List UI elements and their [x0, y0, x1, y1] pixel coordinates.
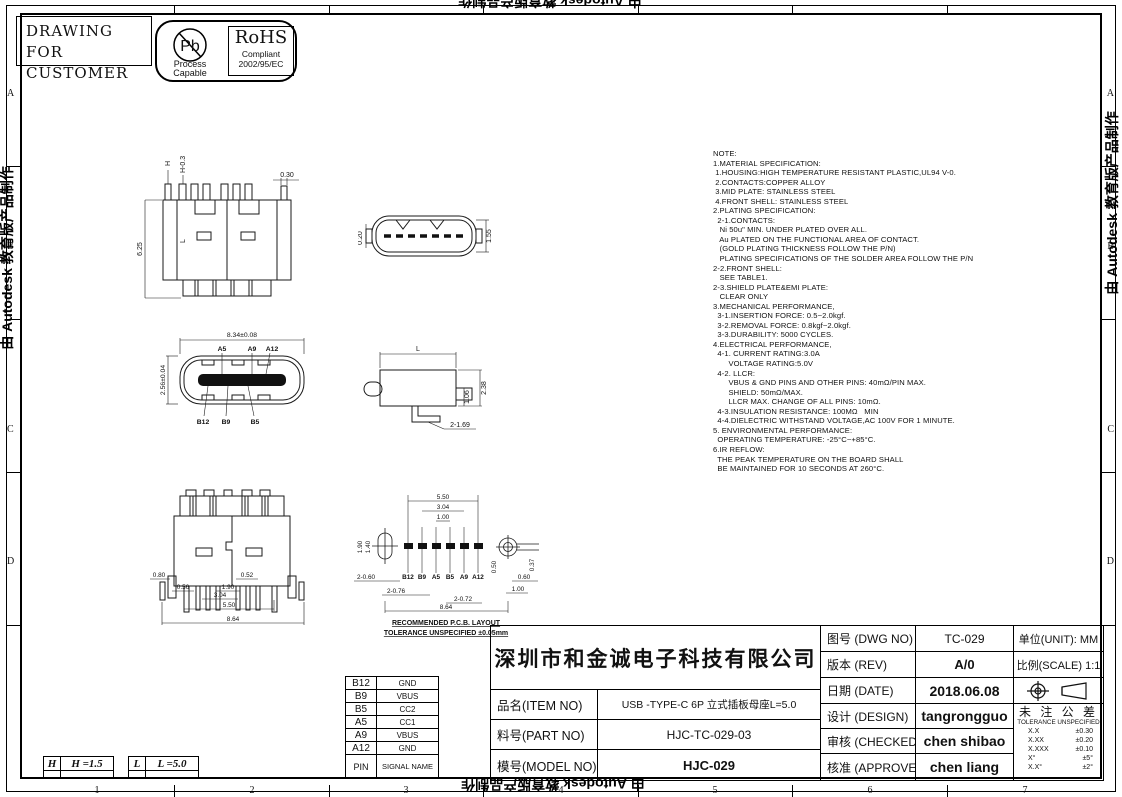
- zone-tick: [329, 5, 330, 13]
- zone-number: 6: [860, 785, 880, 796]
- svg-text:Pb: Pb: [180, 38, 200, 55]
- checked-label: 审核 (CHECKED): [821, 729, 916, 754]
- back-dim-3-04: 3.04: [214, 592, 227, 599]
- zone-number: 7: [1015, 785, 1035, 796]
- checked-value: chen shibao: [916, 729, 1014, 754]
- part-value: HJC-TC-029-03: [598, 720, 821, 750]
- zone-number: 1: [87, 785, 107, 796]
- zone-tick: [174, 5, 175, 13]
- l-key: L: [129, 757, 146, 771]
- face-dim-width: 8.34±0.08: [227, 332, 257, 339]
- watermark-top: 由 Autodesk 教育版产品制作: [425, 0, 675, 11]
- pcb-caption-line1: RECOMMENDED P.C.B. LAYOUT: [392, 620, 501, 627]
- side-dim-l: L: [416, 346, 420, 353]
- back-view-outline: [160, 490, 304, 612]
- pcb-pad-a9: A9: [460, 574, 469, 581]
- pcb-slot-pads: [404, 543, 483, 549]
- h-parameter-table: H H =1.5: [43, 756, 114, 779]
- zone-number: 3: [396, 785, 416, 796]
- top-dim-0-20: 0.20: [358, 231, 364, 245]
- pcb-dim-2-0-60: 2-0.60: [357, 574, 376, 581]
- watermark-left: 由 Autodesk 教育版产品制作: [0, 133, 17, 383]
- model-value: HJC-029: [598, 750, 821, 780]
- rohs-line2: 2002/95/EC: [229, 59, 293, 69]
- zone-tick: [174, 785, 175, 797]
- approved-label: 核准 (APPROVED): [821, 754, 916, 780]
- zone-number: 2: [242, 785, 262, 796]
- face-view-tongue: [198, 374, 286, 386]
- zone-letter: D: [7, 556, 14, 567]
- h-value: H =1.5: [61, 757, 113, 771]
- zone-letter: D: [1107, 556, 1114, 567]
- dwg-no-value: TC-029: [916, 626, 1014, 652]
- item-value: USB -TYPE-C 6P 立式插板母座L=5.0: [598, 690, 821, 720]
- projection-symbol: [1014, 678, 1103, 704]
- pin-cell: B5: [346, 703, 377, 716]
- signal-cell: CC2: [377, 703, 438, 716]
- back-dim-5-50: 5.50: [223, 602, 236, 609]
- top-dim-1-55: 1.55: [486, 229, 493, 243]
- item-label: 品名(ITEM NO): [491, 690, 598, 720]
- face-pin-a12: A12: [266, 346, 279, 353]
- zone-letter: C: [7, 424, 14, 435]
- rohs-title: RoHS: [229, 27, 293, 49]
- h-empty: [44, 771, 61, 778]
- pcb-pad-a5: A5: [432, 574, 441, 581]
- side-dim-1-06: 1.06: [464, 390, 471, 404]
- pcb-pad-b9: B9: [418, 574, 427, 581]
- signal-header-cell: SIGNAL NAME: [377, 755, 438, 778]
- tol-key: X.X: [1028, 727, 1039, 736]
- pcb-dim-1-00: 1.00: [437, 514, 450, 521]
- front-dim-h-minus: H-0.3: [180, 156, 187, 173]
- front-dim-h: H: [165, 161, 172, 166]
- zone-tick: [947, 785, 948, 797]
- l-empty: [129, 771, 146, 778]
- tol-val: ±5°: [1082, 754, 1093, 763]
- pcb-dim-1-90: 1.90: [357, 540, 364, 553]
- drawing-for-customer-box: DRAWING FOR CUSTOMER: [16, 16, 152, 66]
- title-block: 深圳市和金诚电子科技有限公司 品名(ITEM NO) USB -TYPE-C 6…: [490, 625, 1104, 781]
- pcb-dim-2-0-76: 2-0.76: [387, 588, 406, 595]
- signal-cell: GND: [377, 742, 438, 755]
- date-value: 2018.06.08: [916, 678, 1014, 704]
- notes-block: NOTE:1.MATERIAL SPECIFICATION: 1.HOUSING…: [713, 149, 1113, 474]
- zone-number: 5: [705, 785, 725, 796]
- approved-value: chen liang: [916, 754, 1014, 780]
- pcb-dim-2-0-72: 2-0.72: [454, 596, 473, 603]
- side-view: L 1.06 2.38 2-1.69: [348, 328, 493, 440]
- rev-label: 版本 (REV): [821, 652, 916, 678]
- pcb-pad-b5: B5: [446, 574, 455, 581]
- design-value: tangrongguo: [916, 704, 1014, 729]
- pcb-dim-5-50: 5.50: [437, 494, 450, 501]
- back-view: 0.80 0.56 0.52 1.90 3.04 5.50 8.64: [146, 484, 316, 636]
- scale-label: 比例(SCALE) 1:1: [1014, 652, 1103, 678]
- pcb-pads-outline: [372, 528, 539, 564]
- pcb-dim-1-40: 1.40: [365, 540, 372, 553]
- l-value: L =5.0: [146, 757, 198, 771]
- compliance-stamp: Pb Process Capable RoHS Compliant 2002/9…: [155, 20, 297, 82]
- h-key: H: [44, 757, 61, 771]
- drawing-for-line2: CUSTOMER: [26, 63, 151, 84]
- pin-signal-table: B12 GND B9 VBUS B5 CC2 A5 CC1 A9 VBUS A1…: [345, 676, 439, 779]
- face-pin-b5: B5: [251, 419, 260, 426]
- pcb-dim-1-00b: 1.00: [512, 586, 525, 593]
- pcb-dim-0-50: 0.50: [491, 560, 498, 573]
- tolerance-block: 未 注 公 差 TOLERANCE UNSPECIFIED X.X±0.30 X…: [1014, 704, 1103, 780]
- pin-cell: B12: [346, 677, 377, 690]
- rev-value: A/0: [916, 652, 1014, 678]
- back-dim-0-52: 0.52: [241, 572, 254, 579]
- top-view: 0.20 1.55: [358, 196, 493, 276]
- model-label: 模号(MODEL NO): [491, 750, 598, 780]
- front-dim-6-25: 6.25: [137, 242, 144, 256]
- side-dim-holes: 2-1.69: [450, 422, 470, 429]
- pcb-pad-b12: B12: [402, 574, 414, 581]
- zone-letter: A: [7, 88, 14, 99]
- design-label: 设计 (DESIGN): [821, 704, 916, 729]
- company-name: 深圳市和金诚电子科技有限公司: [491, 626, 821, 690]
- tol-val: ±0.10: [1076, 745, 1093, 754]
- date-label: 日期 (DATE): [821, 678, 916, 704]
- back-dim-0-56: 0.56: [177, 584, 190, 591]
- tol-val: ±0.20: [1076, 736, 1093, 745]
- face-pin-b9: B9: [222, 419, 231, 426]
- back-dim-8-64: 8.64: [227, 616, 240, 623]
- pcb-dim-0-37: 0.37: [529, 558, 536, 571]
- pin-cell: A12: [346, 742, 377, 755]
- tol-val: ±0.30: [1076, 727, 1093, 736]
- side-view-outline: [364, 370, 472, 422]
- pcb-dim-8-64: 8.64: [440, 604, 453, 611]
- third-angle-projection-icon: [1016, 679, 1101, 703]
- face-dim-height: 2.56±0.04: [160, 365, 167, 395]
- tol-key: X.X°: [1028, 763, 1042, 772]
- face-pin-a9: A9: [248, 346, 257, 353]
- pin-cell: A9: [346, 729, 377, 742]
- front-dim-0-30: 0.30: [280, 172, 294, 179]
- pcb-layout-view: 5.50 3.04 1.00 1.90 1.40 B12 B9 A5 B5 A9…: [350, 481, 542, 641]
- front-dim-l: L: [180, 239, 187, 243]
- zone-tick: [6, 625, 20, 626]
- tol-key: X.XXX: [1028, 745, 1049, 754]
- pb-caption-line2: Capable: [157, 69, 223, 78]
- drawing-for-line1: DRAWING FOR: [26, 21, 151, 63]
- pcb-pad-a12: A12: [472, 574, 484, 581]
- signal-cell: VBUS: [377, 690, 438, 703]
- dwg-no-label: 图号 (DWG NO): [821, 626, 916, 652]
- back-dim-1-90: 1.90: [222, 584, 235, 591]
- front-view: H H-0.3 0.30 6.25 L: [135, 148, 310, 323]
- signal-cell: GND: [377, 677, 438, 690]
- tol-key: X.XX: [1028, 736, 1044, 745]
- tol-key: X°: [1028, 754, 1035, 763]
- zone-tick: [1102, 625, 1116, 626]
- tol-val: ±2°: [1082, 763, 1093, 772]
- rohs-stamp: RoHS Compliant 2002/95/EC: [228, 26, 294, 76]
- zone-tick: [792, 785, 793, 797]
- back-dim-0-80: 0.80: [153, 572, 166, 579]
- pin-cell: B9: [346, 690, 377, 703]
- tolerance-title: 未 注 公 差: [1014, 704, 1103, 719]
- zone-tick: [6, 472, 20, 473]
- face-view: 8.34±0.08 2.56±0.04 A5 A9 A12 B12 B9 B5: [156, 326, 321, 434]
- unit-label: 单位(UNIT): MM: [1014, 626, 1103, 652]
- signal-cell: VBUS: [377, 729, 438, 742]
- pin-cell: A5: [346, 716, 377, 729]
- pcb-dim-0-60: 0.60: [518, 574, 531, 581]
- tolerance-subtitle: TOLERANCE UNSPECIFIED: [1014, 719, 1103, 727]
- part-label: 料号(PART NO): [491, 720, 598, 750]
- zone-tick: [329, 785, 330, 797]
- pin-header-cell: PIN: [346, 755, 377, 778]
- face-pin-a5: A5: [218, 346, 227, 353]
- pcb-dimension-lines: [354, 495, 538, 613]
- face-pin-b12: B12: [197, 419, 210, 426]
- rohs-line1: Compliant: [229, 49, 293, 59]
- side-dim-2-38: 2.38: [481, 381, 488, 395]
- drawing-sheet: 1 2 3 4 5 6 7 A B C D A B C D 由 Autodesk…: [0, 0, 1122, 797]
- front-view-dimension-lines: [145, 170, 299, 298]
- signal-cell: CC1: [377, 716, 438, 729]
- zone-tick: [792, 5, 793, 13]
- zone-tick: [947, 5, 948, 13]
- l-parameter-table: L L =5.0: [128, 756, 199, 779]
- pcb-dim-3-04: 3.04: [437, 504, 450, 511]
